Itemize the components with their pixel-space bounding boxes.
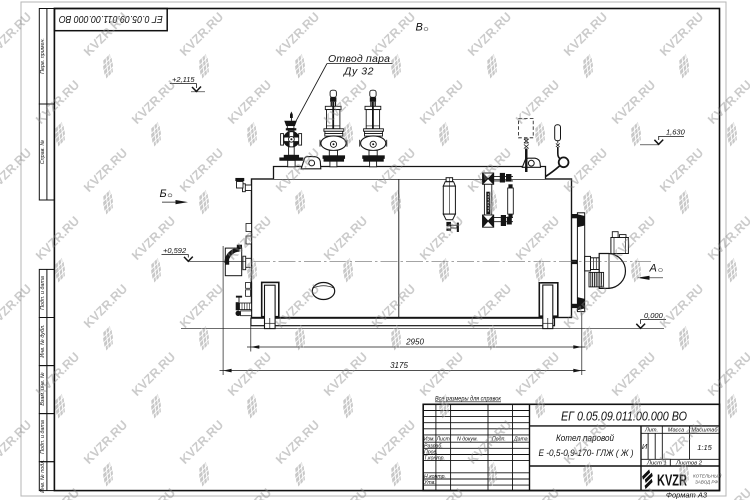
svg-text:Лит.: Лит. [644, 428, 658, 434]
svg-text:Ду 32: Ду 32 [343, 66, 374, 78]
svg-text:КОТЕЛЬНЫЙ: КОТЕЛЬНЫЙ [693, 472, 722, 479]
svg-text:Н.контр.: Н.контр. [424, 474, 446, 480]
svg-text:1,630: 1,630 [666, 128, 686, 137]
svg-text:1:15: 1:15 [697, 443, 712, 452]
svg-text:+0,592: +0,592 [163, 246, 187, 255]
svg-text:Перв. примен.: Перв. примен. [40, 38, 46, 74]
svg-text:Б: Б [160, 188, 167, 200]
svg-text:3175: 3175 [390, 361, 408, 370]
svg-text:Дата: Дата [513, 436, 528, 442]
svg-text:ЕГ 0.05.09.011.00.000 ВО: ЕГ 0.05.09.011.00.000 ВО [561, 409, 687, 424]
svg-text:Изм.: Изм. [424, 436, 435, 442]
svg-text:Листов 2: Листов 2 [675, 461, 703, 467]
svg-text:Разраб.: Разраб. [424, 443, 443, 449]
svg-text:+2,115: +2,115 [172, 75, 195, 84]
svg-text:Пров.: Пров. [424, 450, 438, 456]
svg-text:А: А [649, 263, 657, 275]
svg-text:N докум.: N докум. [457, 436, 478, 442]
svg-text:Справ. №: Справ. № [40, 140, 46, 165]
svg-text:Формат А3: Формат А3 [666, 491, 708, 500]
svg-text:Инв. № подл.: Инв. № подл. [40, 459, 46, 492]
svg-text:И: И [642, 442, 648, 451]
svg-text:ЗАВОД РФ: ЗАВОД РФ [695, 480, 718, 485]
svg-text:Утв.: Утв. [424, 480, 436, 486]
svg-text:Т.контр.: Т.контр. [424, 456, 445, 462]
svg-text:Инв. № дубл.: Инв. № дубл. [40, 324, 46, 357]
svg-text:Лист: Лист [436, 436, 451, 442]
svg-text:В: В [416, 22, 423, 34]
svg-text:Подп. и дата: Подп. и дата [40, 420, 46, 454]
svg-text:2950: 2950 [405, 338, 424, 347]
svg-text:Подп. и дата: Подп. и дата [40, 276, 46, 310]
